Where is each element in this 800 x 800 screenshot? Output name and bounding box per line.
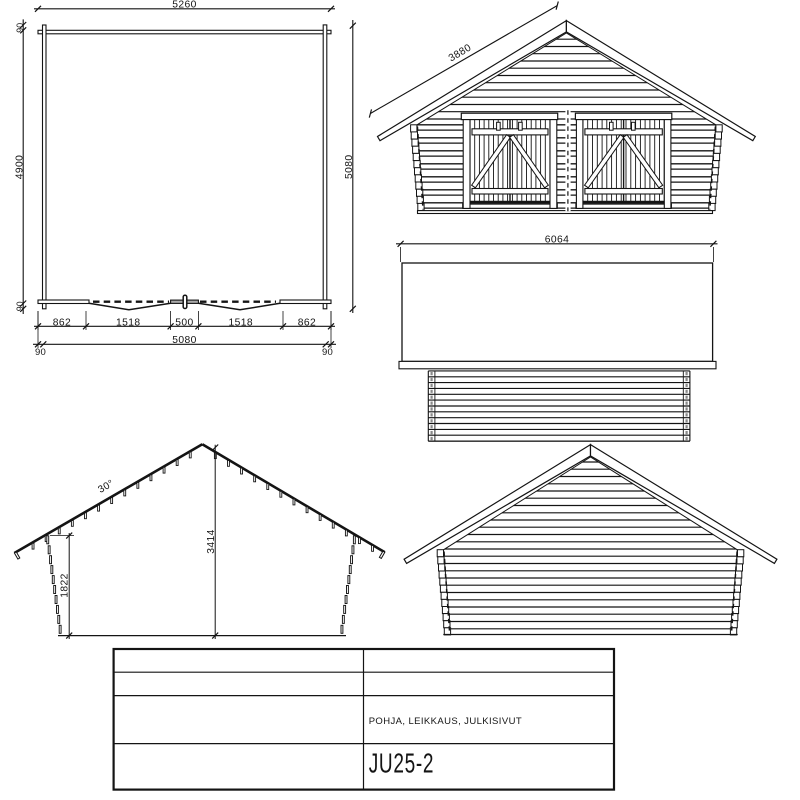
svg-text:90: 90: [15, 301, 25, 311]
svg-text:5260: 5260: [172, 0, 197, 10]
svg-text:5080: 5080: [344, 155, 355, 180]
svg-text:JU25-2: JU25-2: [369, 748, 434, 780]
svg-text:90: 90: [35, 347, 46, 358]
svg-text:90: 90: [15, 23, 25, 33]
svg-text:1822: 1822: [60, 573, 71, 598]
svg-text:862: 862: [53, 317, 71, 328]
svg-text:500: 500: [175, 317, 193, 328]
svg-text:5080: 5080: [172, 335, 197, 346]
svg-text:6064: 6064: [545, 235, 570, 246]
svg-text:3414: 3414: [206, 529, 217, 554]
svg-text:1518: 1518: [116, 317, 141, 328]
svg-text:1518: 1518: [228, 317, 253, 328]
svg-text:POHJA, LEIKKAUS, JULKISIVUT: POHJA, LEIKKAUS, JULKISIVUT: [369, 716, 522, 727]
svg-text:90: 90: [322, 347, 333, 358]
svg-text:4900: 4900: [15, 155, 26, 180]
svg-text:862: 862: [298, 317, 316, 328]
